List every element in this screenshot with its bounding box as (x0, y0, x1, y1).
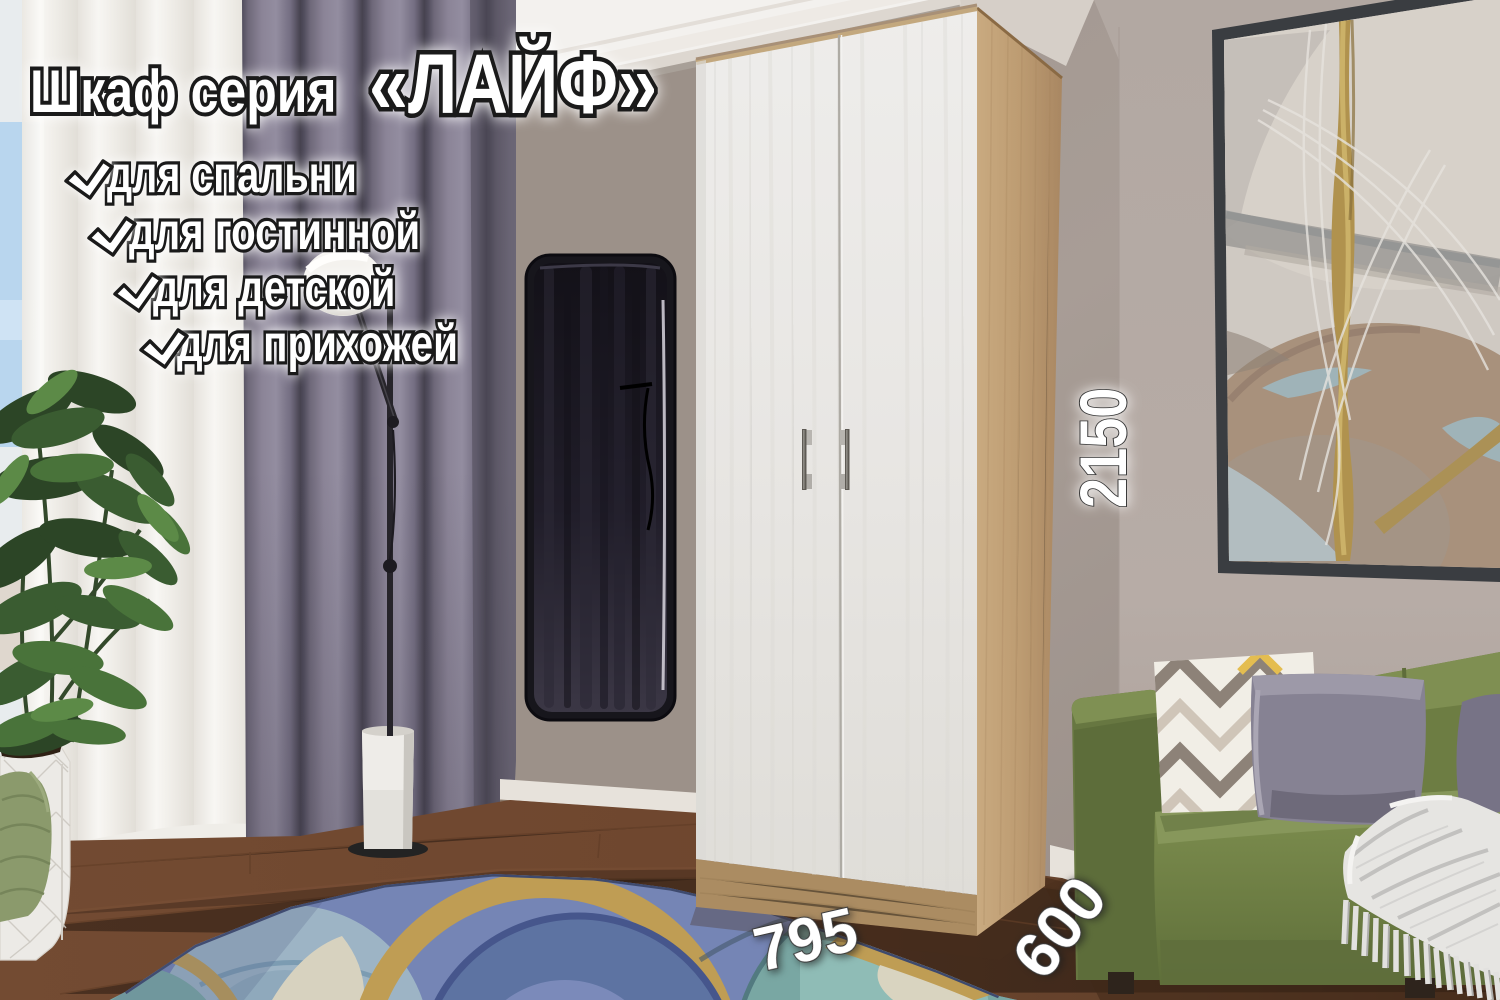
svg-text:2150: 2150 (1066, 388, 1140, 508)
svg-text:Шкаф серия: Шкаф серия (30, 58, 337, 125)
svg-text:«ЛАЙФ»: «ЛАЙФ» (369, 36, 657, 132)
svg-text:для спальни: для спальни (107, 145, 357, 204)
svg-text:для прихожей: для прихожей (177, 314, 458, 372)
svg-text:для детской: для детской (153, 259, 395, 317)
svg-text:для гостинной: для гостинной (129, 202, 420, 260)
